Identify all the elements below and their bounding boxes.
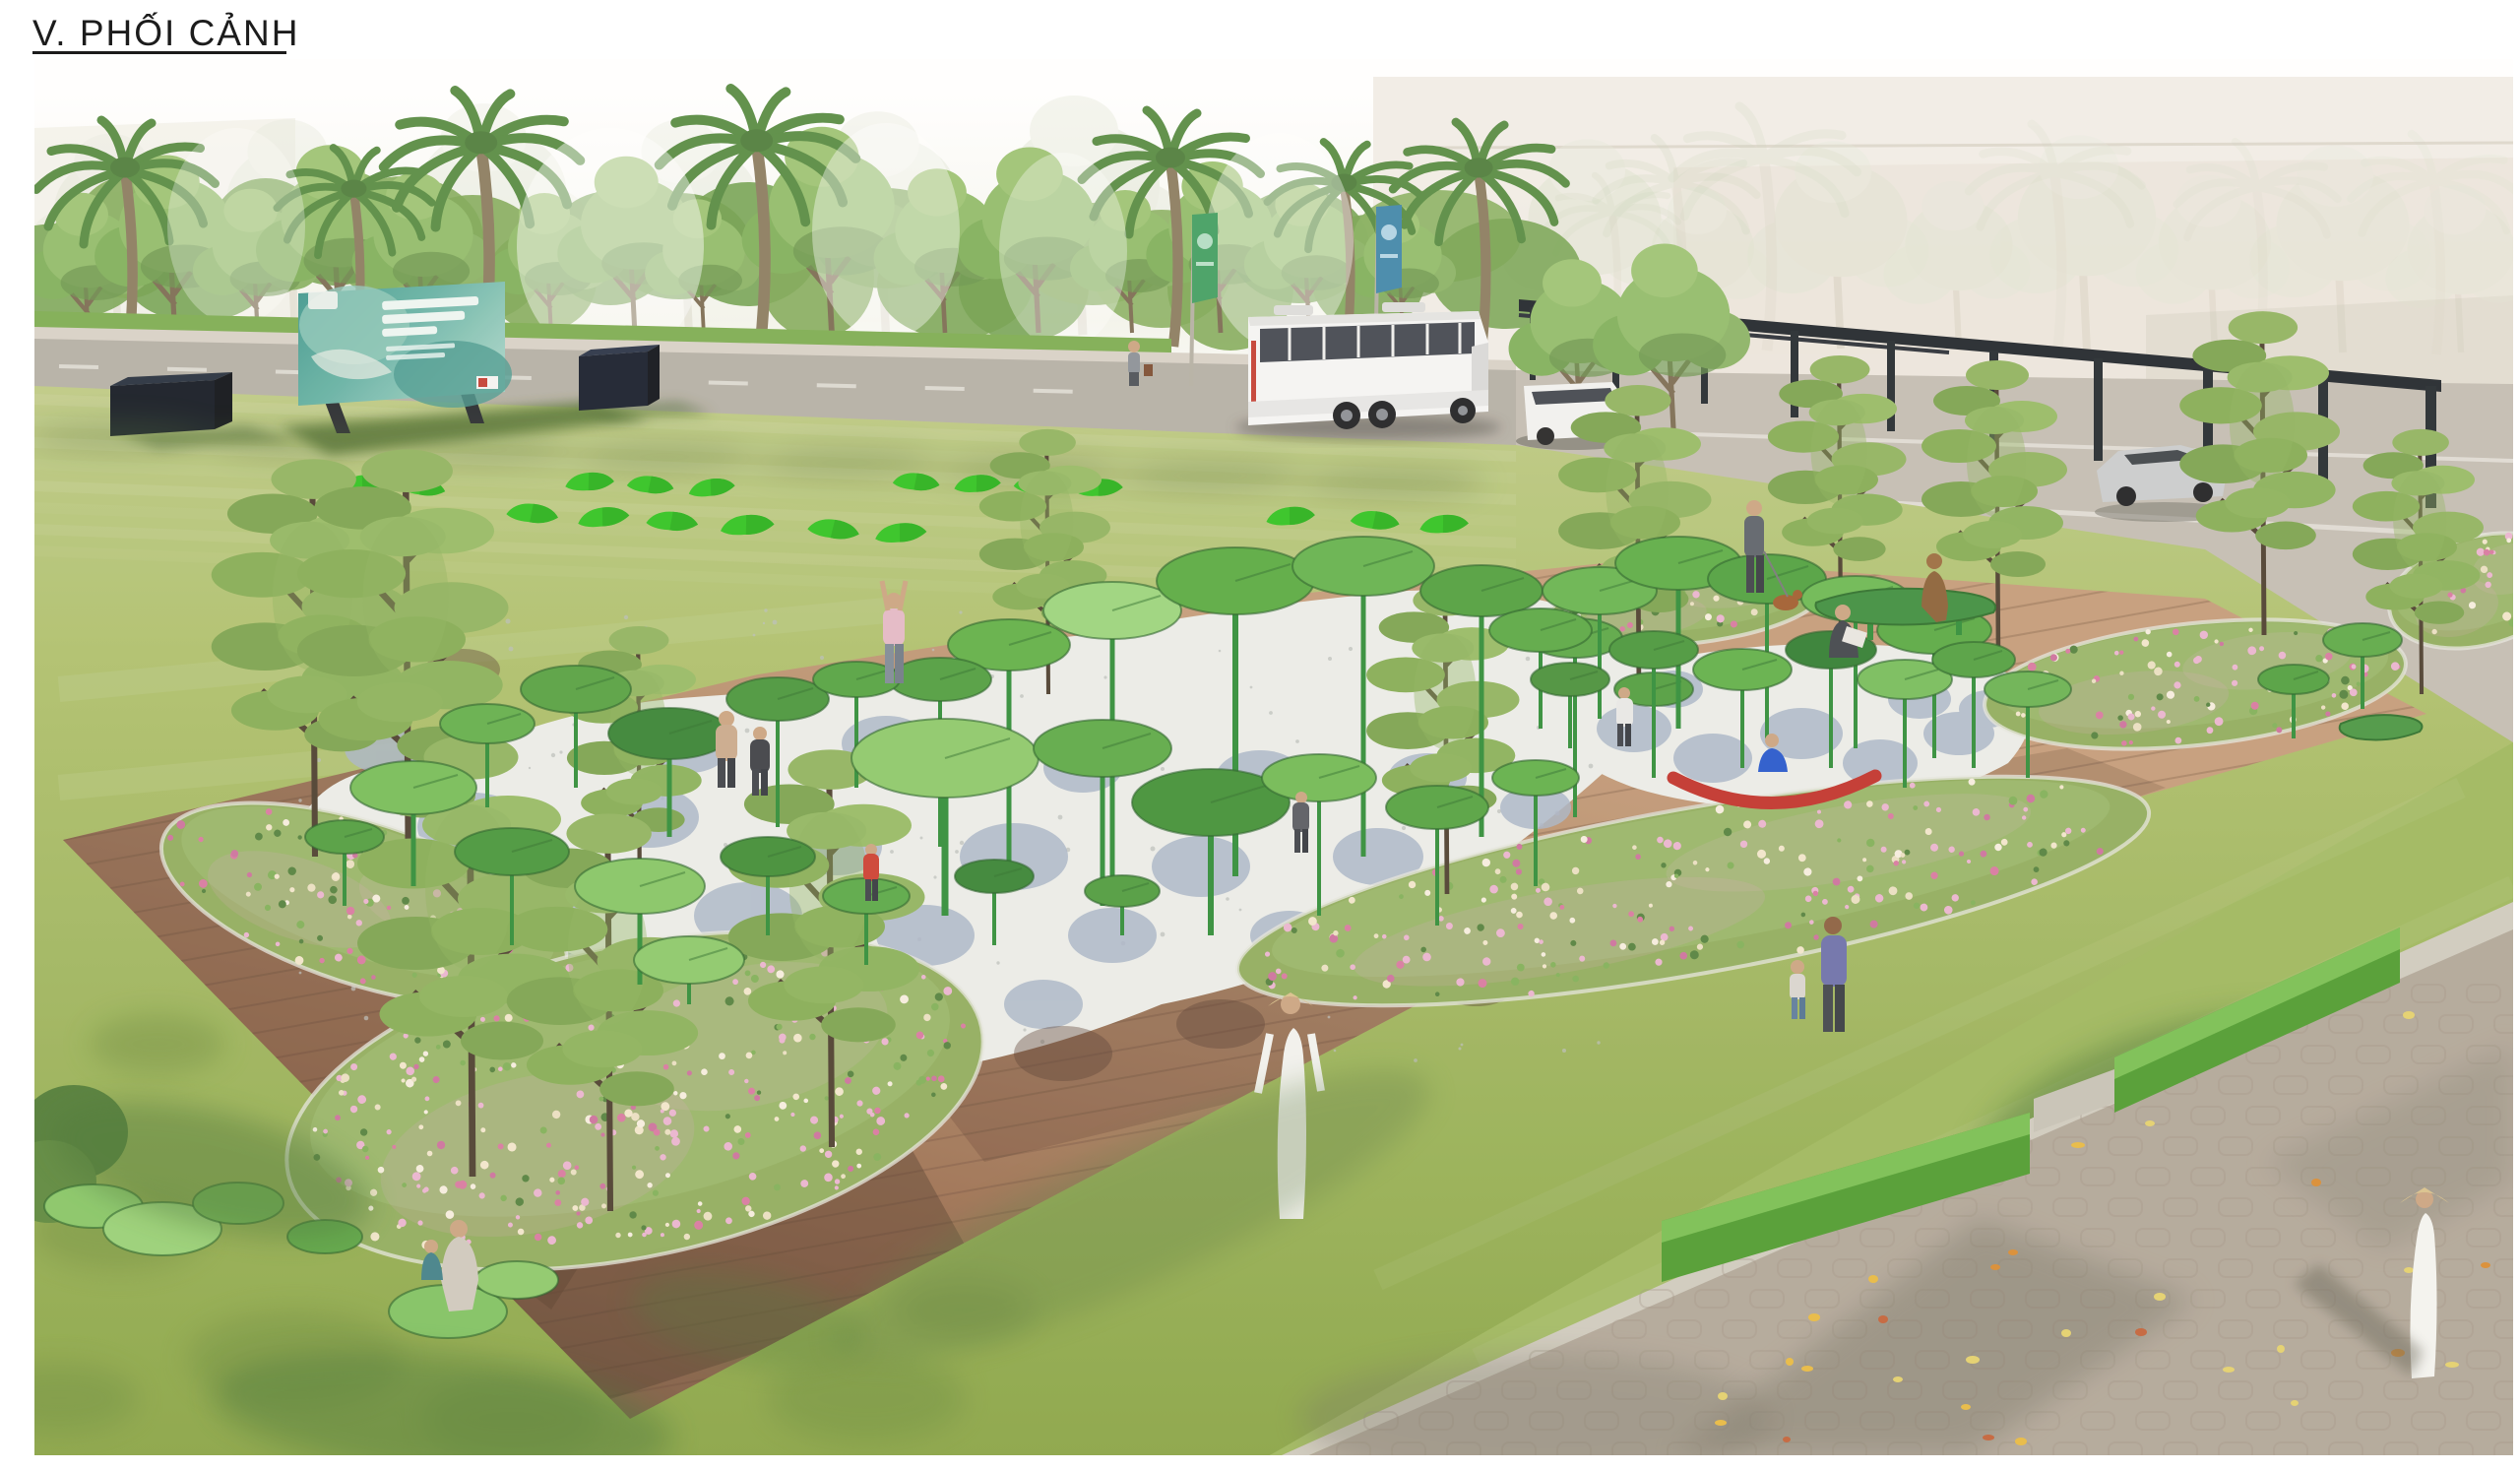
svg-text:V. PHỐI CẢNH: V. PHỐI CẢNH xyxy=(32,12,299,53)
